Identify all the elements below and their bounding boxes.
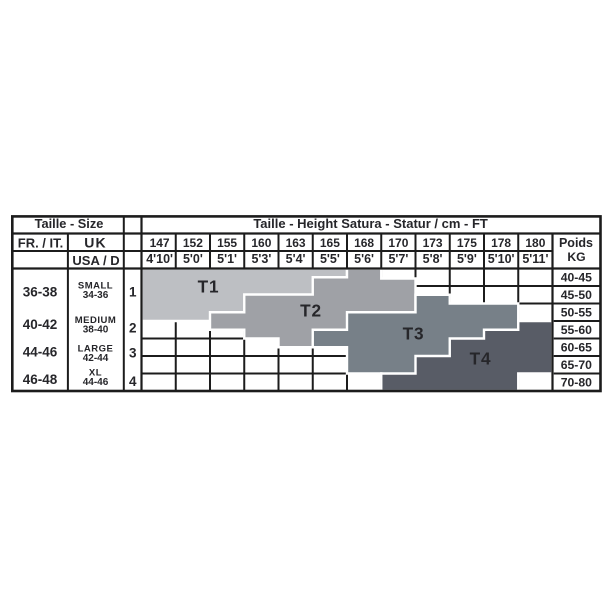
svg-text:36-38: 36-38	[23, 285, 58, 300]
svg-text:168: 168	[354, 236, 374, 250]
svg-text:3: 3	[129, 346, 137, 361]
svg-text:60-65: 60-65	[561, 341, 592, 355]
svg-text:38-40: 38-40	[83, 325, 109, 336]
svg-text:5'9': 5'9'	[457, 252, 477, 266]
svg-text:USA / D: USA / D	[72, 253, 119, 268]
svg-text:Poids: Poids	[559, 236, 593, 250]
svg-text:5'3': 5'3'	[251, 252, 271, 266]
svg-text:45-50: 45-50	[561, 288, 592, 302]
svg-text:170: 170	[388, 236, 408, 250]
svg-text:T4: T4	[470, 349, 492, 369]
svg-text:55-60: 55-60	[561, 323, 592, 337]
svg-text:5'11': 5'11'	[522, 252, 548, 266]
svg-text:175: 175	[457, 236, 477, 250]
svg-text:155: 155	[217, 236, 237, 250]
svg-text:65-70: 65-70	[561, 358, 592, 372]
svg-text:165: 165	[320, 236, 340, 250]
svg-text:FR. / IT.: FR. / IT.	[18, 236, 64, 251]
svg-text:4'10': 4'10'	[146, 252, 173, 266]
svg-text:5'5': 5'5'	[320, 252, 340, 266]
svg-text:152: 152	[183, 236, 203, 250]
svg-text:5'4': 5'4'	[286, 252, 306, 266]
svg-text:44-46: 44-46	[23, 345, 58, 360]
svg-text:2: 2	[129, 321, 137, 336]
svg-text:KG: KG	[567, 250, 585, 264]
svg-text:160: 160	[251, 236, 271, 250]
svg-text:173: 173	[423, 236, 443, 250]
svg-text:178: 178	[491, 236, 511, 250]
svg-text:Taille - Size: Taille - Size	[35, 216, 104, 231]
svg-text:44-46: 44-46	[83, 377, 109, 388]
svg-text:34-36: 34-36	[83, 290, 109, 301]
svg-text:1: 1	[129, 285, 137, 300]
svg-text:180: 180	[525, 236, 545, 250]
svg-text:T2: T2	[300, 301, 322, 321]
svg-text:5'6': 5'6'	[354, 252, 374, 266]
svg-text:5'1': 5'1'	[217, 252, 237, 266]
svg-text:T1: T1	[198, 277, 220, 297]
svg-text:42-44: 42-44	[83, 353, 109, 364]
svg-text:5'10': 5'10'	[488, 252, 515, 266]
svg-text:T3: T3	[403, 324, 425, 344]
svg-text:147: 147	[150, 236, 170, 250]
svg-text:UK: UK	[84, 235, 107, 251]
svg-text:70-80: 70-80	[561, 376, 592, 390]
svg-text:5'8': 5'8'	[423, 252, 443, 266]
svg-text:46-48: 46-48	[23, 372, 58, 387]
svg-text:5'7': 5'7'	[388, 252, 408, 266]
svg-text:40-42: 40-42	[23, 317, 58, 332]
svg-text:50-55: 50-55	[561, 306, 592, 320]
svg-text:Taille - Height Satura - Statu: Taille - Height Satura - Statur / cm - F…	[253, 216, 488, 231]
svg-text:4: 4	[129, 374, 137, 389]
svg-text:163: 163	[286, 236, 306, 250]
svg-text:5'0': 5'0'	[183, 252, 203, 266]
svg-text:40-45: 40-45	[561, 271, 592, 285]
